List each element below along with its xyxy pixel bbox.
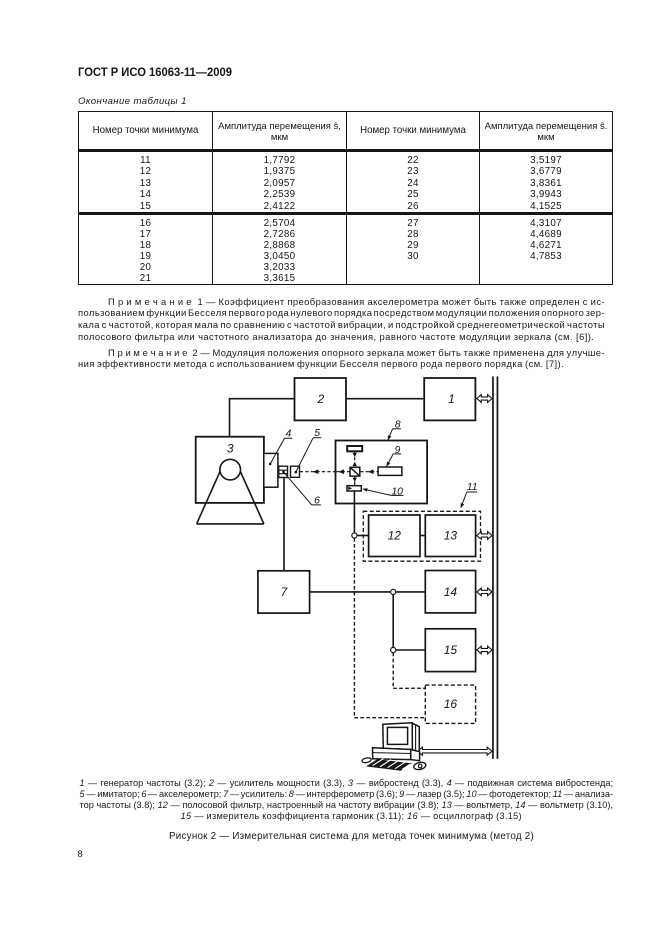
svg-text:15: 15 [444, 643, 458, 657]
svg-text:11: 11 [467, 481, 478, 493]
svg-text:12: 12 [388, 529, 402, 543]
svg-text:3: 3 [227, 442, 234, 456]
svg-text:2: 2 [316, 392, 324, 406]
svg-text:14: 14 [444, 585, 458, 599]
svg-text:13: 13 [444, 529, 458, 543]
svg-text:1: 1 [448, 392, 455, 406]
svg-text:16: 16 [444, 697, 458, 711]
